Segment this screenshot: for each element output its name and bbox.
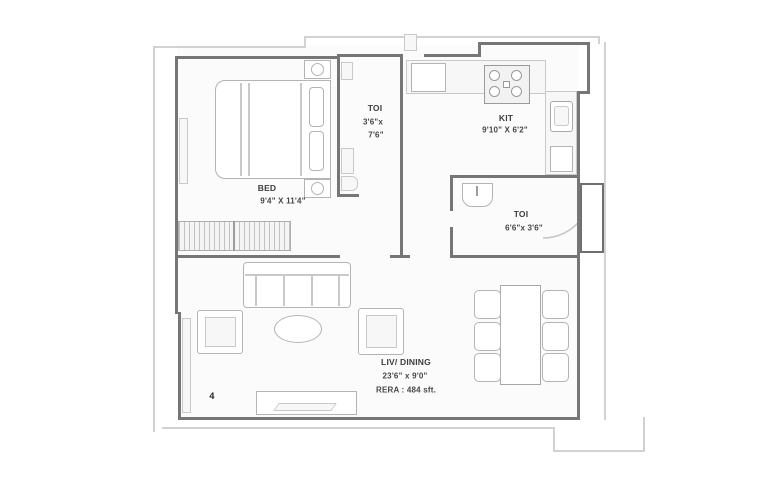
wall-top-toilet (337, 54, 403, 57)
wall-left-lower (178, 312, 181, 420)
boundary-bottom-step-v (553, 427, 555, 452)
boundary-top-right-conn (598, 36, 600, 44)
burner-icon (511, 86, 522, 97)
sofa-arm-right-line (338, 275, 340, 306)
toilet-top-basin (341, 62, 353, 80)
ledge-left-lower (182, 318, 191, 413)
toilet-top-dims-2: 7'6" (368, 131, 383, 140)
burner-icon (489, 86, 500, 97)
boundary-top-left (153, 46, 305, 48)
wall-passage-right (400, 54, 403, 258)
pillow-bottom (309, 131, 324, 171)
boundary-right (604, 42, 606, 420)
wall-right-notch-vertical (587, 42, 590, 94)
burner-icon (489, 70, 500, 81)
unit-number-label: 4 (209, 391, 214, 401)
coffee-table (274, 315, 322, 343)
wall-toilet-right-top (450, 175, 580, 178)
dining-chair (542, 322, 569, 351)
sofa-back-line (245, 274, 349, 276)
kitchen-appliance-box (550, 146, 573, 172)
living-dining-dims: 23'6" x 9'0" (383, 372, 428, 381)
pillow-top (309, 87, 324, 127)
boundary-top-right (304, 36, 600, 38)
toilet-top-shelf (341, 148, 354, 174)
stove-knob-icon (503, 81, 510, 88)
kitchen-sink-basin (554, 106, 569, 126)
sofa (243, 262, 351, 308)
wall-bottom (178, 417, 580, 420)
boundary-left (153, 46, 155, 432)
kitchen-dims: 9'10" X 6'2" (482, 126, 528, 135)
wall-toilet-top-bottom (337, 194, 359, 197)
dining-table (500, 285, 541, 385)
dining-chair (474, 290, 501, 319)
lamp-top-icon (311, 63, 324, 76)
sofa-arm-left-line (255, 275, 257, 306)
wall-top-kitchen (424, 54, 480, 57)
tv-icon (273, 403, 337, 411)
boundary-bottom-right-h (553, 450, 645, 452)
living-dining-label: LIV/ DINING (381, 357, 431, 367)
bed-room-label: BED (258, 183, 277, 193)
toilet-right-dims: 6'6"x 3'6" (505, 224, 543, 233)
toilet-top-wc (341, 176, 358, 191)
boundary-bottom (162, 427, 554, 429)
wardrobe-divider (233, 221, 235, 251)
dining-chair (542, 353, 569, 382)
wall-top-kitchen-raised (478, 42, 590, 45)
wall-top-step-vertical (478, 42, 481, 57)
dining-chair (474, 353, 501, 382)
sofa-seat-divider-1 (283, 275, 285, 306)
kitchen-label: KIT (499, 113, 513, 123)
lamp-bottom-icon (311, 182, 324, 195)
burner-icon (511, 70, 522, 81)
fridge (411, 63, 446, 92)
wall-left-upper (175, 56, 178, 314)
entrance-door-panel (404, 34, 417, 51)
wall-bedroom-toilet (337, 54, 340, 197)
toilet-right-label: TOI (514, 209, 529, 219)
dining-chair (474, 322, 501, 351)
armchair-left-cushion (205, 317, 236, 347)
wall-toilet-right-left-b (450, 227, 453, 258)
ledge-left-upper (179, 118, 188, 184)
sofa-seat-divider-2 (311, 275, 313, 306)
floor-plan-sheet: BED 9'4" X 11'4" TOI 3'6"x 7'6" KIT 9'10… (0, 0, 768, 480)
wall-bedroom-living (175, 255, 340, 258)
rera-area-label: RERA : 484 sft. (376, 386, 436, 395)
toilet-top-dims-1: 3'6"x (363, 118, 383, 127)
wardrobe (178, 221, 291, 251)
wall-living-stub (390, 255, 410, 258)
dining-chair (542, 290, 569, 319)
bed-fold-line-2 (248, 83, 250, 176)
bed-fold-line-1 (240, 83, 242, 176)
washbasin-tap-icon (476, 186, 478, 196)
armchair-right-cushion (366, 315, 397, 348)
wall-toilet-right-left-a (450, 175, 453, 211)
duct-shaft (580, 183, 604, 253)
bed-room-dims: 9'4" X 11'4" (260, 197, 305, 206)
boundary-bottom-right-v (643, 417, 645, 452)
bed-sheet-line (300, 83, 302, 176)
toilet-top-label: TOI (368, 103, 383, 113)
wall-top-bedroom (175, 56, 340, 59)
wall-toilet-right-bottom (450, 255, 580, 258)
toilet-right-washbasin (462, 183, 493, 207)
